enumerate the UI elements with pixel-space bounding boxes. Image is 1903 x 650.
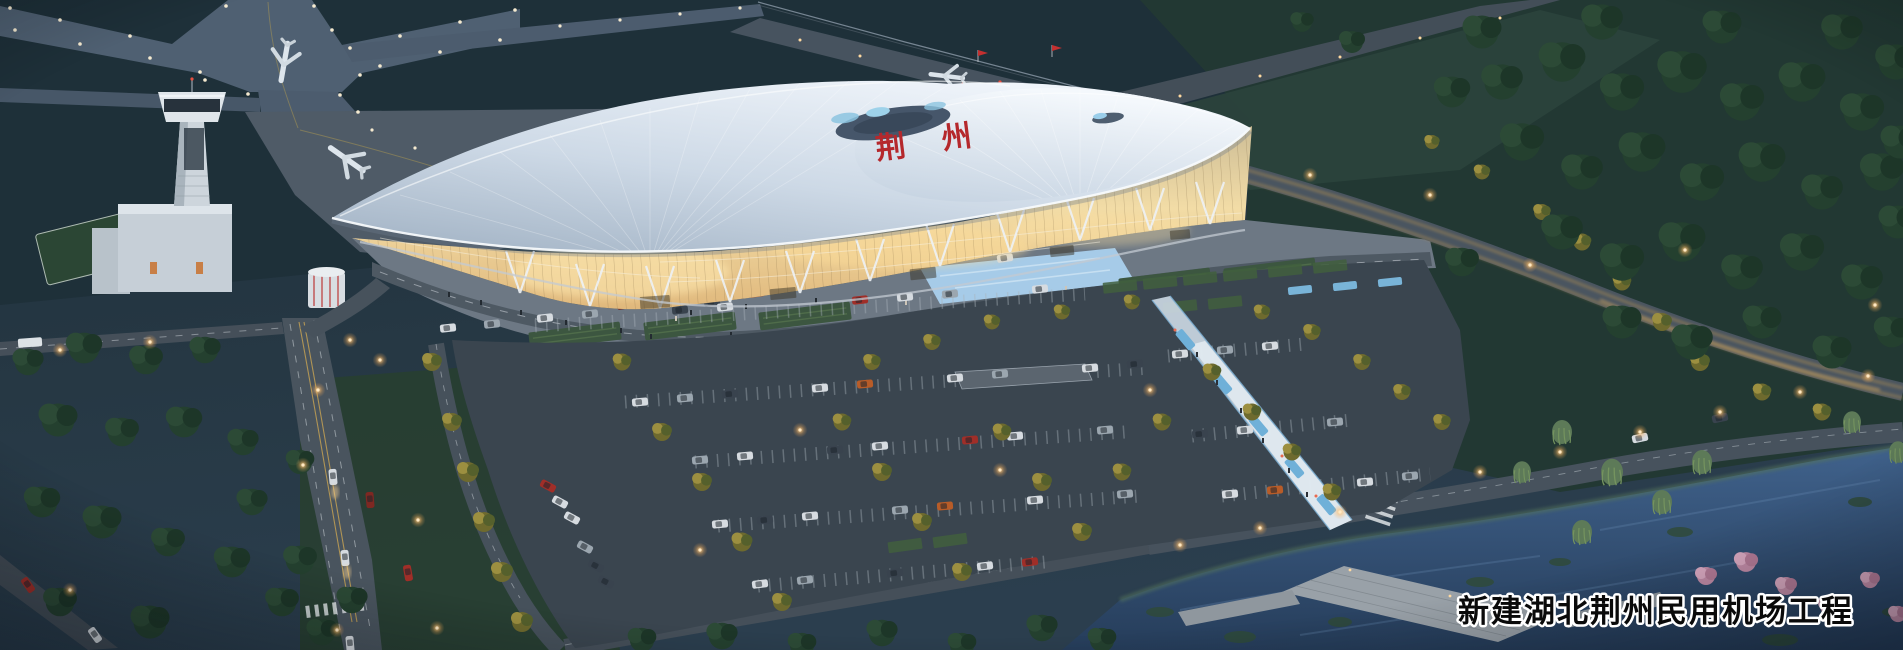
project-caption: 新建湖北荆州民用机场工程 [1458,594,1854,630]
airport-night-rendering: 荆 州 [0,0,1903,650]
rendering-canvas: 荆 州 [0,0,1903,650]
vignette-overlay [0,0,1903,650]
